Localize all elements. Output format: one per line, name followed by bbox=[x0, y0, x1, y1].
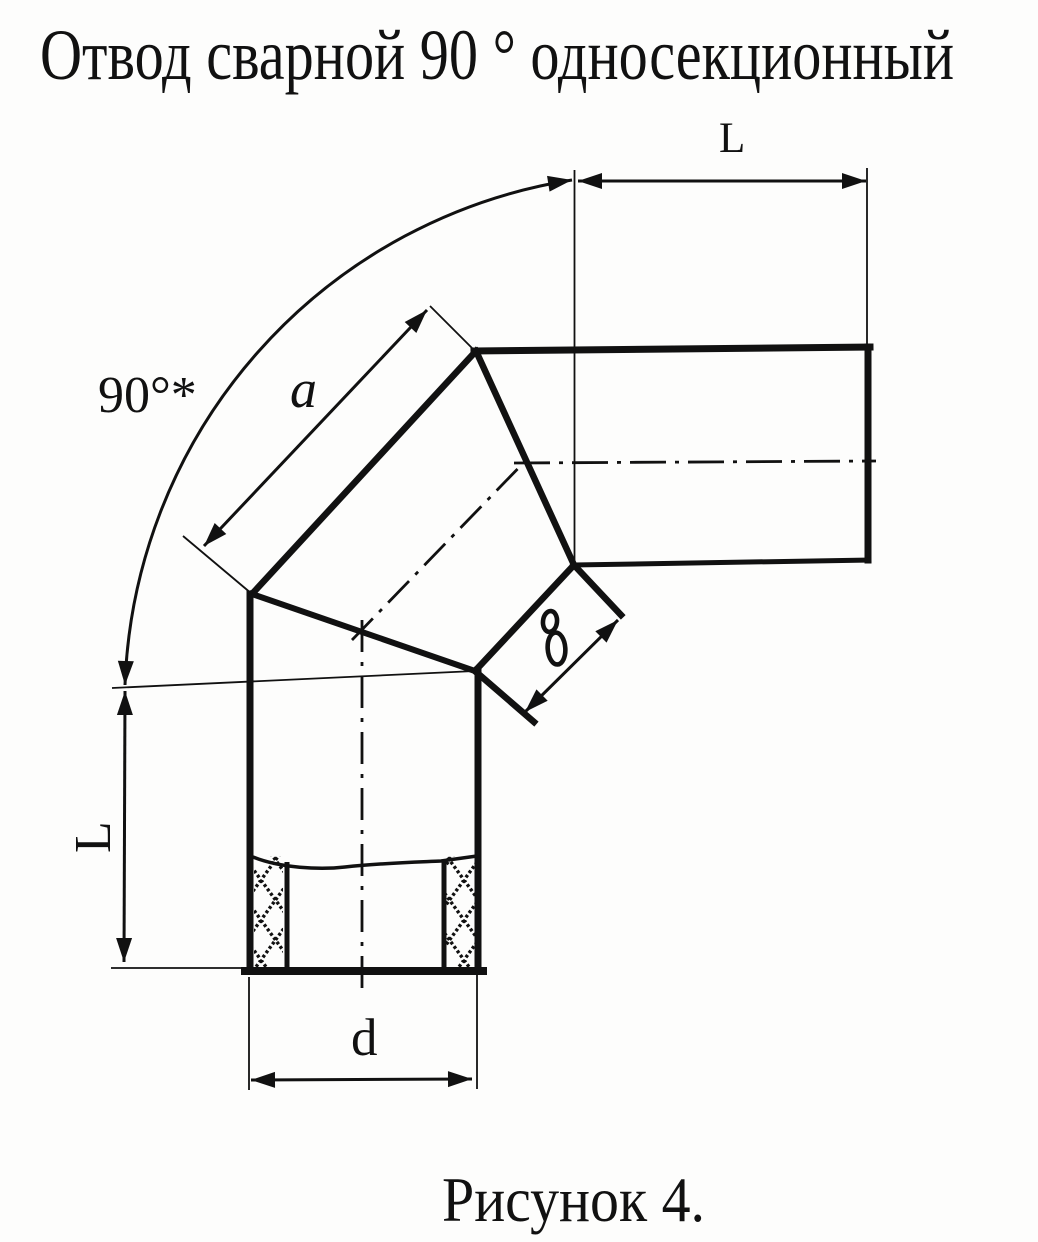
svg-text:Отвод сварной 90 ° односекцион: Отвод сварной 90 ° односекционный bbox=[40, 15, 954, 95]
svg-text:L: L bbox=[719, 115, 745, 162]
svg-text:L: L bbox=[65, 821, 122, 853]
svg-text:a: a bbox=[290, 359, 317, 419]
svg-text:Рисунок 4.: Рисунок 4. bbox=[442, 1165, 705, 1235]
svg-text:90°*: 90°* bbox=[98, 367, 197, 424]
svg-text:d: d bbox=[351, 1009, 378, 1067]
